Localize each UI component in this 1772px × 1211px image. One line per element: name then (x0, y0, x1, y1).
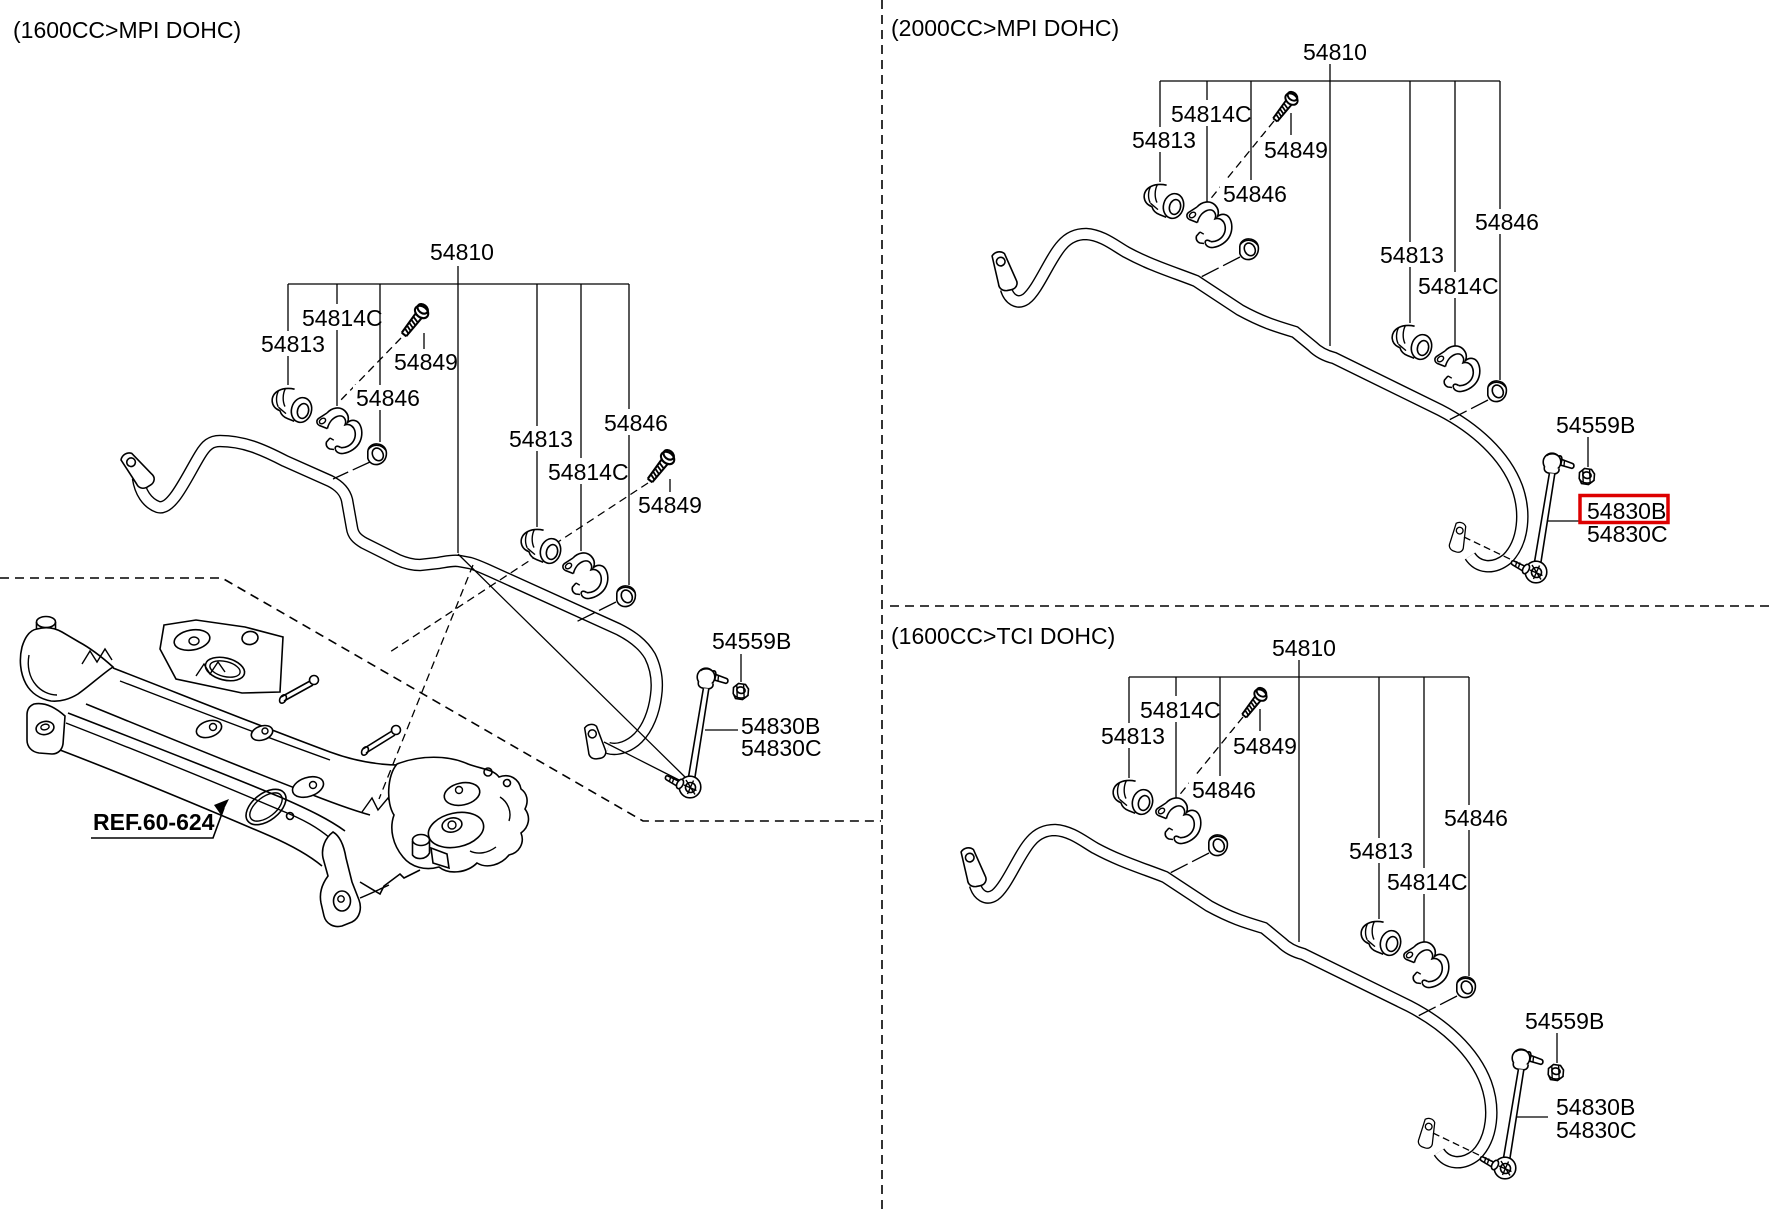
svg-text:54846: 54846 (604, 410, 668, 436)
svg-text:54813: 54813 (261, 331, 325, 357)
svg-text:REF.60-624: REF.60-624 (93, 809, 215, 835)
svg-text:54849: 54849 (638, 492, 702, 518)
svg-text:54813: 54813 (509, 426, 573, 452)
svg-text:54559B: 54559B (1556, 412, 1635, 438)
svg-text:54814C: 54814C (1171, 101, 1252, 127)
svg-text:54846: 54846 (1475, 209, 1539, 235)
svg-text:54813: 54813 (1132, 127, 1196, 153)
svg-text:54830C: 54830C (741, 735, 822, 761)
svg-text:54814C: 54814C (1418, 273, 1499, 299)
svg-text:54846: 54846 (356, 385, 420, 411)
svg-text:(1600CC>TCI DOHC): (1600CC>TCI DOHC) (891, 623, 1115, 649)
svg-text:54814C: 54814C (302, 305, 383, 331)
svg-text:54849: 54849 (394, 349, 458, 375)
svg-text:(2000CC>MPI DOHC): (2000CC>MPI DOHC) (891, 15, 1119, 41)
svg-text:54814C: 54814C (548, 459, 629, 485)
svg-text:(1600CC>MPI DOHC): (1600CC>MPI DOHC) (13, 17, 241, 43)
svg-text:54559B: 54559B (712, 628, 791, 654)
svg-text:54849: 54849 (1264, 137, 1328, 163)
svg-text:54810: 54810 (1303, 39, 1367, 65)
svg-text:54830C: 54830C (1587, 521, 1668, 547)
svg-text:54846: 54846 (1223, 181, 1287, 207)
svg-text:54813: 54813 (1380, 242, 1444, 268)
svg-text:54810: 54810 (430, 239, 494, 265)
